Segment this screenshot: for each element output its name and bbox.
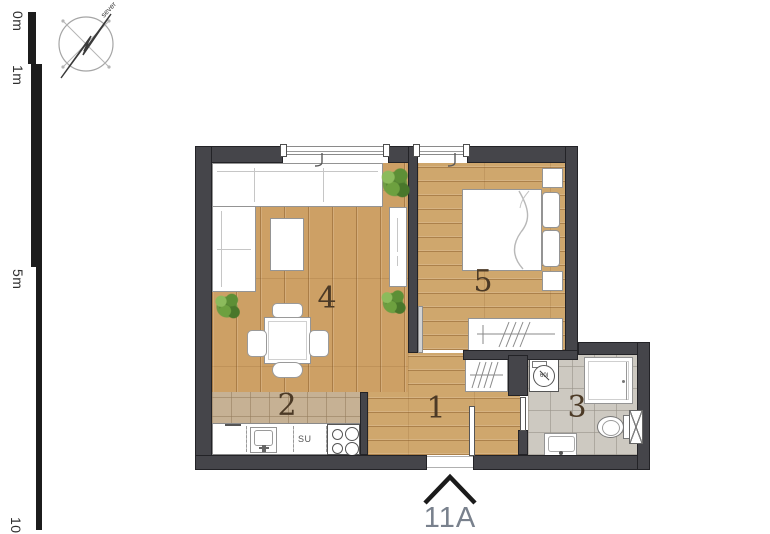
bedroom-window: [417, 146, 467, 155]
scale-bar-segment-5-10m: [36, 267, 42, 530]
bed-pillow: [542, 192, 560, 228]
potted-plant: [378, 288, 408, 318]
entrance-threshold-line: [427, 456, 473, 457]
wall-top-right: [467, 146, 578, 163]
wall-bathroom-left-upper: [508, 355, 528, 396]
wardrobe-hanging-clothes-icon: [469, 319, 562, 350]
sofa-top-section: [212, 163, 383, 207]
room-number-hallway: 1: [426, 394, 446, 424]
wall-bathroom-left-lower: [518, 430, 528, 455]
bedroom-sliding-door: [418, 306, 423, 353]
room-number-bathroom: 3: [567, 393, 587, 423]
potted-plant: [378, 165, 412, 203]
room-number-bedroom: 5: [473, 267, 493, 297]
toilet-bowl: [597, 416, 624, 438]
coffee-table: [270, 218, 304, 271]
dining-chair-left: [247, 330, 267, 357]
dining-chair-top: [272, 303, 303, 318]
hallway-closet: [465, 358, 508, 392]
wall-bedroom-right: [565, 146, 578, 360]
scale-bar-segment-0-1m: [28, 12, 36, 64]
wall-bottom-left: [195, 455, 427, 470]
wall-bathroom-right: [637, 342, 650, 470]
kitchen-sink: [250, 427, 277, 453]
scale-label-0m: 0m: [10, 11, 26, 41]
bathroom-door-leaf: [520, 397, 526, 431]
shower: [584, 357, 633, 404]
hallway-floor-passage: [368, 392, 408, 455]
scale-label-1m: 1m: [10, 65, 26, 95]
dining-table: [264, 317, 311, 364]
compass-north-arrow: sever: [48, 2, 132, 88]
entrance-door-leaf: [469, 406, 475, 456]
scale-label-5m: 5m: [10, 269, 26, 299]
living-room-window: [283, 146, 388, 155]
scale-label-10m: 10m: [8, 517, 24, 534]
closet-hanging-clothes-icon: [466, 359, 507, 391]
entrance-threshold-line: [427, 467, 473, 468]
window-post: [280, 144, 287, 157]
kitchen-stove: [327, 424, 360, 455]
floor-plan-page: 0m 1m 5m 10m sever: [0, 0, 770, 534]
window-opening-hook-icon: [445, 153, 459, 169]
entrance-chevron-icon: [418, 472, 482, 506]
unit-number-label: 11A: [405, 502, 495, 534]
nightstand: [542, 271, 563, 291]
wall-kitchen-stub: [360, 392, 368, 455]
window-post: [383, 144, 390, 157]
wall-bottom-right: [473, 455, 650, 470]
room-number-kitchen: 2: [277, 391, 297, 421]
sofa-left-section: [212, 206, 256, 292]
installation-shaft: [629, 410, 643, 444]
bed: [462, 189, 542, 271]
window-opening-hook-icon: [312, 153, 326, 169]
dishwasher-label: SU: [298, 434, 312, 444]
bathroom-sink: [544, 433, 577, 456]
bedroom-wardrobe: [468, 318, 563, 351]
room-number-living: 4: [316, 284, 338, 314]
bed-pillow: [542, 230, 560, 267]
bed-blanket-folds: [463, 190, 541, 270]
tv-stand: [389, 207, 407, 287]
nightstand: [542, 168, 563, 188]
window-post: [413, 144, 420, 157]
dining-chair-bottom: [272, 362, 303, 378]
potted-plant: [212, 291, 242, 323]
window-post: [463, 144, 470, 157]
scale-bar-segment-1-5m: [31, 64, 42, 267]
wall-left: [195, 146, 212, 470]
dining-chair-right: [309, 330, 329, 357]
